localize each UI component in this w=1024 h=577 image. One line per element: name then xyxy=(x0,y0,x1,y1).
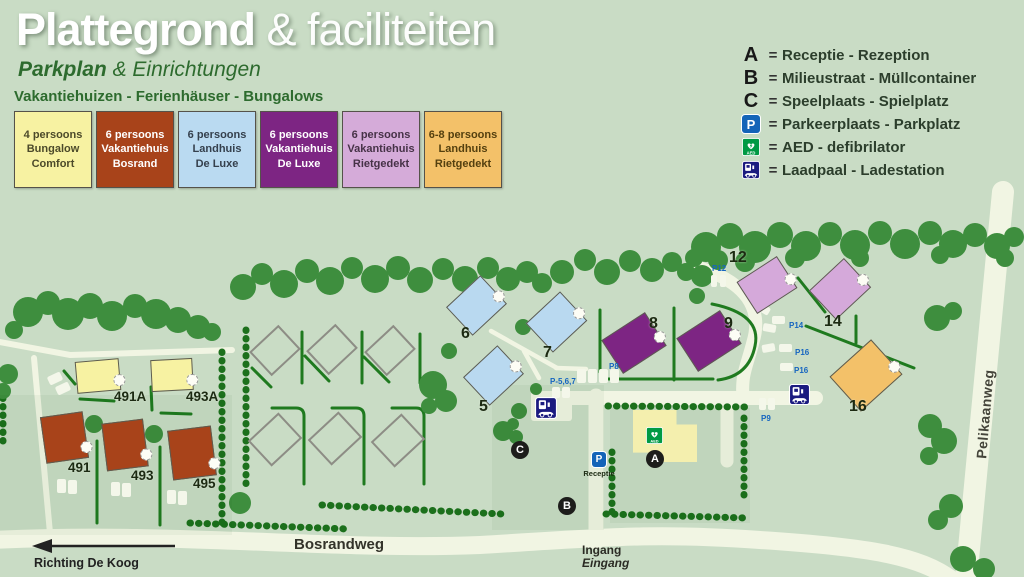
legend-row-receptie: A = Receptie - Rezeption xyxy=(738,46,976,64)
house-label: 8 xyxy=(649,315,658,333)
marker-milieustraat: B xyxy=(558,497,576,515)
parking-stall xyxy=(178,491,187,505)
marker-reception: A xyxy=(646,450,664,468)
receptie-label: Receptie xyxy=(578,469,620,478)
parking-label: P-5,6,7 xyxy=(550,377,576,386)
charger-icon xyxy=(789,384,810,410)
marker-letter-a: A xyxy=(738,44,764,67)
parking-label: P12 xyxy=(712,264,726,273)
legend-bungalow-comfort: 4 persoons Bungalow Comfort xyxy=(14,111,92,188)
parking-label: P9 xyxy=(761,414,771,423)
legend-row-laadpaal: = Laadpaal - Ladestation xyxy=(738,161,976,179)
house-493A xyxy=(150,358,194,392)
parking-stall xyxy=(610,369,619,383)
parking-icon: P xyxy=(742,115,760,133)
house-label: 491A xyxy=(114,389,146,404)
legend-row-parkeerplaats: P = Parkeerplaats - Parkplatz xyxy=(738,115,976,133)
aed-icon: AED xyxy=(742,138,760,156)
parking-stall xyxy=(111,482,120,496)
road-topleft xyxy=(0,341,232,355)
house-label: 16 xyxy=(849,398,867,416)
entrance-label-nl: Ingang xyxy=(582,543,621,557)
tagline: Vakantiehuizen - Ferienhäuser - Bungalow… xyxy=(14,88,323,105)
legend-landhuis-rietgedekt: 6-8 persoons Landhuis Rietgedekt xyxy=(424,111,502,188)
title-word-bold: Plattegrond xyxy=(16,4,255,55)
parking-stall xyxy=(122,483,131,497)
marker-letter-b: B xyxy=(738,67,764,90)
house-label: 493 xyxy=(131,468,154,483)
house-label: 5 xyxy=(479,398,488,416)
legend-vakantiehuis-bosrand: 6 persoons Vakantiehuis Bosrand xyxy=(96,111,174,188)
facilities-legend: A = Receptie - Rezeption B = Milieustraa… xyxy=(738,46,976,179)
direction-label: Richting De Koog xyxy=(34,556,139,570)
house-label: 493A xyxy=(186,389,218,404)
direction-arrow xyxy=(30,536,180,556)
parking-stall xyxy=(588,369,597,383)
page-subtitle: Parkplan & Einrichtungen xyxy=(18,58,261,82)
parking-stall xyxy=(780,363,793,371)
title-word-rest: & faciliteiten xyxy=(267,4,496,55)
house-type-legend: 4 persoons Bungalow Comfort 6 persoons V… xyxy=(14,111,502,188)
parking-stall xyxy=(562,387,570,398)
house-label: 6 xyxy=(461,325,470,343)
svg-text:AED: AED xyxy=(650,438,658,443)
house-493 xyxy=(101,419,149,472)
house-label: 9 xyxy=(724,315,733,333)
legend-row-aed: AED = AED - defibrilator xyxy=(738,138,976,156)
parking-stall xyxy=(68,480,77,494)
parking-stall xyxy=(768,398,775,410)
house-label: 12 xyxy=(729,249,747,267)
parking-label: P14 xyxy=(789,321,803,330)
svg-text:AED: AED xyxy=(747,150,756,155)
parking-label: P8 xyxy=(609,362,619,371)
parking-stall xyxy=(720,275,726,287)
legend-vakantiehuis-de-luxe: 6 persoons Vakantiehuis De Luxe xyxy=(260,111,338,188)
charger-icon xyxy=(742,161,760,179)
road-label-bosrandweg: Bosrandweg xyxy=(294,536,384,553)
parking-stall xyxy=(772,316,785,324)
parking-label: P16 xyxy=(795,348,809,357)
house-label: 14 xyxy=(824,313,842,331)
house-491 xyxy=(40,411,89,464)
parking-stall xyxy=(779,344,792,352)
aed-icon: AED xyxy=(646,427,663,449)
parking-stall xyxy=(57,479,66,493)
charger-icon xyxy=(535,397,557,424)
entrance-label-de: Eingang xyxy=(582,556,629,570)
reception-parking: P xyxy=(592,452,606,467)
legend-row-speelplaats: C = Speelplaats - Spielplatz xyxy=(738,92,976,110)
parking-stall xyxy=(759,398,766,410)
legend-vakantiehuis-rietgedekt: 6 persoons Vakantiehuis Rietgedekt xyxy=(342,111,420,188)
house-495 xyxy=(167,426,217,481)
marker-speelplaats: C xyxy=(511,441,529,459)
legend-row-milieustraat: B = Milieustraat - Müllcontainer xyxy=(738,69,976,87)
parking-stall xyxy=(577,369,586,383)
parking-stall xyxy=(711,275,717,287)
page-title: Plattegrond & faciliteiten xyxy=(16,4,495,56)
park-map: Plattegrond & faciliteiten Parkplan & Ei… xyxy=(0,0,1024,577)
legend-landhuis-de-luxe: 6 persoons Landhuis De Luxe xyxy=(178,111,256,188)
parking-stall xyxy=(167,490,176,504)
marker-letter-c: C xyxy=(738,90,764,113)
house-label: 7 xyxy=(543,344,552,362)
house-label: 491 xyxy=(68,460,91,475)
parking-label: P16 xyxy=(794,366,808,375)
parking-stall xyxy=(599,369,608,383)
parking-icon: P xyxy=(592,452,606,467)
house-label: 495 xyxy=(193,476,216,491)
